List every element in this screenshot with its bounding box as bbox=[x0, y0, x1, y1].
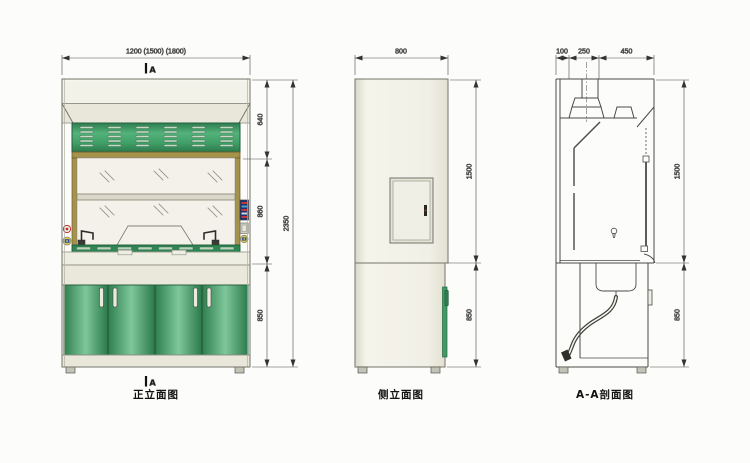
vent-slot bbox=[108, 127, 121, 129]
vent-slot bbox=[164, 145, 177, 147]
vent-slot bbox=[136, 140, 149, 142]
vent-slot bbox=[220, 131, 233, 133]
vent-slot bbox=[220, 127, 233, 129]
worktop-slot bbox=[179, 247, 193, 250]
side-access-panel bbox=[390, 178, 433, 243]
front-sash-dim: 860 bbox=[258, 206, 265, 218]
vent-slot bbox=[108, 140, 121, 142]
vent-slot bbox=[192, 145, 205, 147]
front-base-dim: 850 bbox=[258, 310, 265, 322]
side-base-dim: 850 bbox=[467, 309, 474, 321]
section-dimensions: 100 250 450 1500 850 bbox=[556, 49, 689, 368]
section-dim-right: 450 bbox=[621, 49, 633, 56]
side-door-handle bbox=[445, 290, 449, 306]
sash-left-stile bbox=[72, 158, 77, 245]
vent-slot bbox=[136, 127, 149, 129]
front-canopy bbox=[62, 79, 250, 104]
light-bulb-icon bbox=[611, 228, 617, 237]
front-total-dim: 2350 bbox=[284, 216, 291, 232]
sash-right-stile bbox=[235, 158, 240, 245]
section-letter-top: A bbox=[150, 66, 157, 75]
side-view bbox=[355, 79, 448, 373]
cabinet-doors bbox=[64, 285, 248, 355]
worktop-slot bbox=[77, 247, 91, 250]
vent-slot bbox=[192, 140, 205, 142]
section-dim-mid: 250 bbox=[578, 49, 590, 56]
section-foot-right bbox=[637, 367, 646, 373]
front-view-title: 正立面图 bbox=[96, 387, 216, 402]
vent-slot bbox=[80, 140, 93, 142]
section-small-collar bbox=[614, 107, 634, 118]
side-base-cabinet bbox=[355, 263, 445, 367]
drain-hose bbox=[561, 297, 616, 362]
front-vent-panel bbox=[72, 123, 240, 152]
worktop-front bbox=[62, 252, 250, 265]
front-foot-right bbox=[235, 367, 244, 373]
vent-slot bbox=[80, 145, 93, 147]
vent-slot bbox=[164, 131, 177, 133]
vent-slot bbox=[220, 145, 233, 147]
vent-slot bbox=[108, 131, 121, 133]
airfoil bbox=[644, 254, 655, 263]
side-foot-right bbox=[431, 367, 440, 373]
side-upper-dim: 1500 bbox=[467, 164, 474, 180]
worktop-slot bbox=[159, 247, 173, 250]
vent-slot bbox=[136, 131, 149, 133]
vent-slot bbox=[164, 140, 177, 142]
front-hood-dim: 640 bbox=[258, 114, 265, 126]
side-depth-dim: 800 bbox=[395, 49, 407, 56]
vent-slot bbox=[108, 145, 121, 147]
section-upper-dim: 1500 bbox=[675, 164, 682, 180]
section-dim-left: 100 bbox=[556, 49, 568, 56]
vent-slot bbox=[80, 131, 93, 133]
section-baffle bbox=[574, 122, 600, 250]
cup-sink-cover-left bbox=[118, 250, 132, 255]
vent-slot bbox=[80, 127, 93, 129]
front-view bbox=[62, 79, 250, 373]
front-foot-left bbox=[66, 367, 75, 373]
section-view bbox=[556, 62, 655, 373]
worktop-slot bbox=[138, 247, 152, 250]
vent-slot bbox=[80, 136, 93, 138]
section-foot-left bbox=[559, 367, 568, 373]
cabinet-apron bbox=[62, 265, 250, 285]
worktop-slot bbox=[220, 247, 234, 250]
sash-middle-rail bbox=[77, 194, 235, 200]
sash-top-rail bbox=[72, 152, 240, 158]
section-cabinet-handle bbox=[648, 290, 652, 305]
vent-slot bbox=[220, 140, 233, 142]
fume-hood-technical-drawing: 1200 (1500) (1800) A A 640 860 850 2350 bbox=[0, 0, 750, 458]
vent-slot bbox=[108, 136, 121, 138]
worktop-slot bbox=[118, 247, 132, 250]
vent-slot bbox=[136, 145, 149, 147]
cabinet-plinth bbox=[62, 355, 250, 367]
section-sash bbox=[641, 128, 655, 263]
right-socket bbox=[241, 235, 248, 242]
section-front-slant bbox=[637, 107, 654, 127]
section-view-title: A-A剖面图 bbox=[545, 387, 665, 402]
vent-slot bbox=[192, 136, 205, 138]
vent-slot bbox=[192, 131, 205, 133]
vent-slot bbox=[164, 127, 177, 129]
side-foot-left bbox=[358, 367, 367, 373]
front-width-dim: 1200 (1500) (1800) bbox=[126, 49, 186, 56]
side-view-title: 侧立面图 bbox=[341, 387, 461, 402]
vent-slot bbox=[164, 136, 177, 138]
vent-slot bbox=[136, 136, 149, 138]
worktop-slot bbox=[200, 247, 214, 250]
vent-slot bbox=[192, 127, 205, 129]
front-canopy-recess bbox=[62, 104, 250, 124]
section-base-dim: 850 bbox=[675, 309, 682, 321]
section-sink bbox=[596, 263, 636, 297]
worktop-slot bbox=[97, 247, 111, 250]
cup-sink-cover-right bbox=[172, 250, 186, 255]
vent-slot bbox=[220, 136, 233, 138]
